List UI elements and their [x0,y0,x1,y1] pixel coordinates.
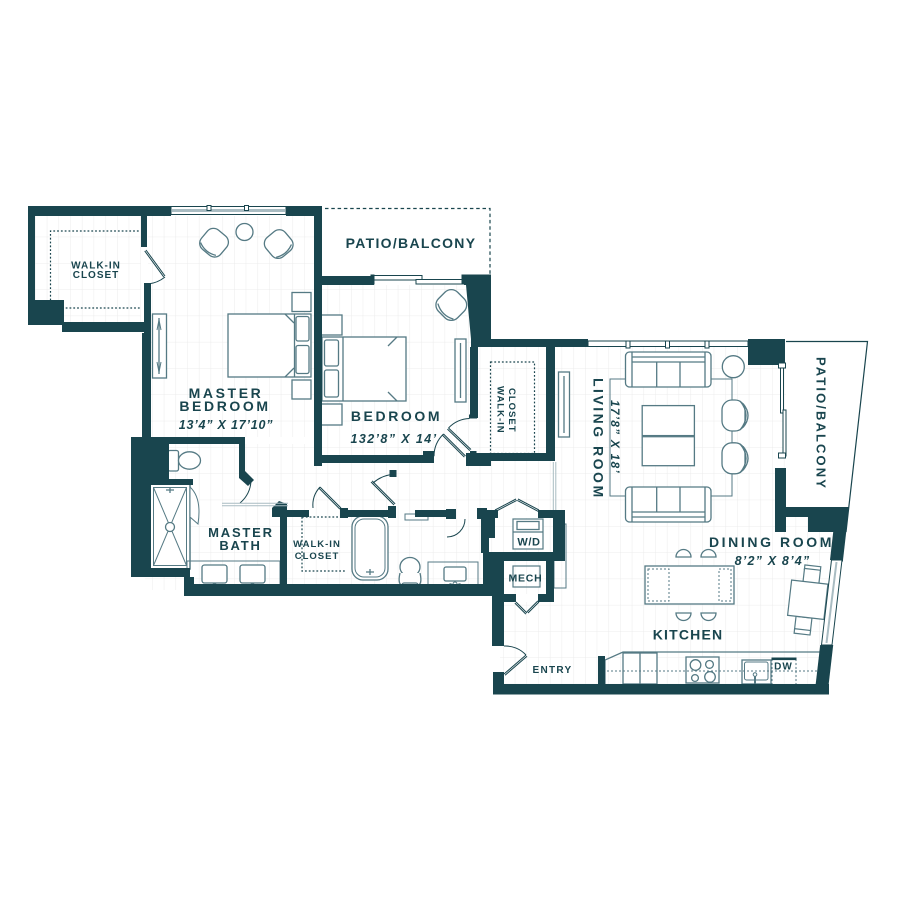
svg-text:13’4” X 17’10”: 13’4” X 17’10” [179,418,274,432]
svg-text:132’8” X 14’: 132’8” X 14’ [351,432,438,446]
svg-text:DINING ROOM: DINING ROOM [709,534,834,550]
svg-text:LIVING ROOM: LIVING ROOM [591,378,607,500]
svg-text:17’8” X 18’: 17’8” X 18’ [608,400,622,474]
svg-text:8’2” X 8’4”: 8’2” X 8’4” [735,554,811,568]
svg-text:BEDROOM: BEDROOM [351,408,442,424]
svg-text:KITCHEN: KITCHEN [653,627,724,643]
svg-text:WALK-IN: WALK-IN [293,539,341,550]
svg-text:CLOSET: CLOSET [295,551,340,562]
svg-text:CLOSET: CLOSET [73,270,120,281]
svg-text:BEDROOM: BEDROOM [179,398,270,414]
svg-text:PATIO/BALCONY: PATIO/BALCONY [814,357,829,490]
svg-text:WALK-IN: WALK-IN [495,386,506,434]
svg-text:BATH: BATH [219,538,261,553]
svg-text:ENTRY: ENTRY [532,665,572,676]
svg-text:DW: DW [774,662,793,673]
svg-text:PATIO/BALCONY: PATIO/BALCONY [346,235,477,251]
svg-text:W/D: W/D [517,537,540,549]
svg-text:MECH: MECH [508,573,542,585]
svg-text:CLOSET: CLOSET [506,388,517,433]
